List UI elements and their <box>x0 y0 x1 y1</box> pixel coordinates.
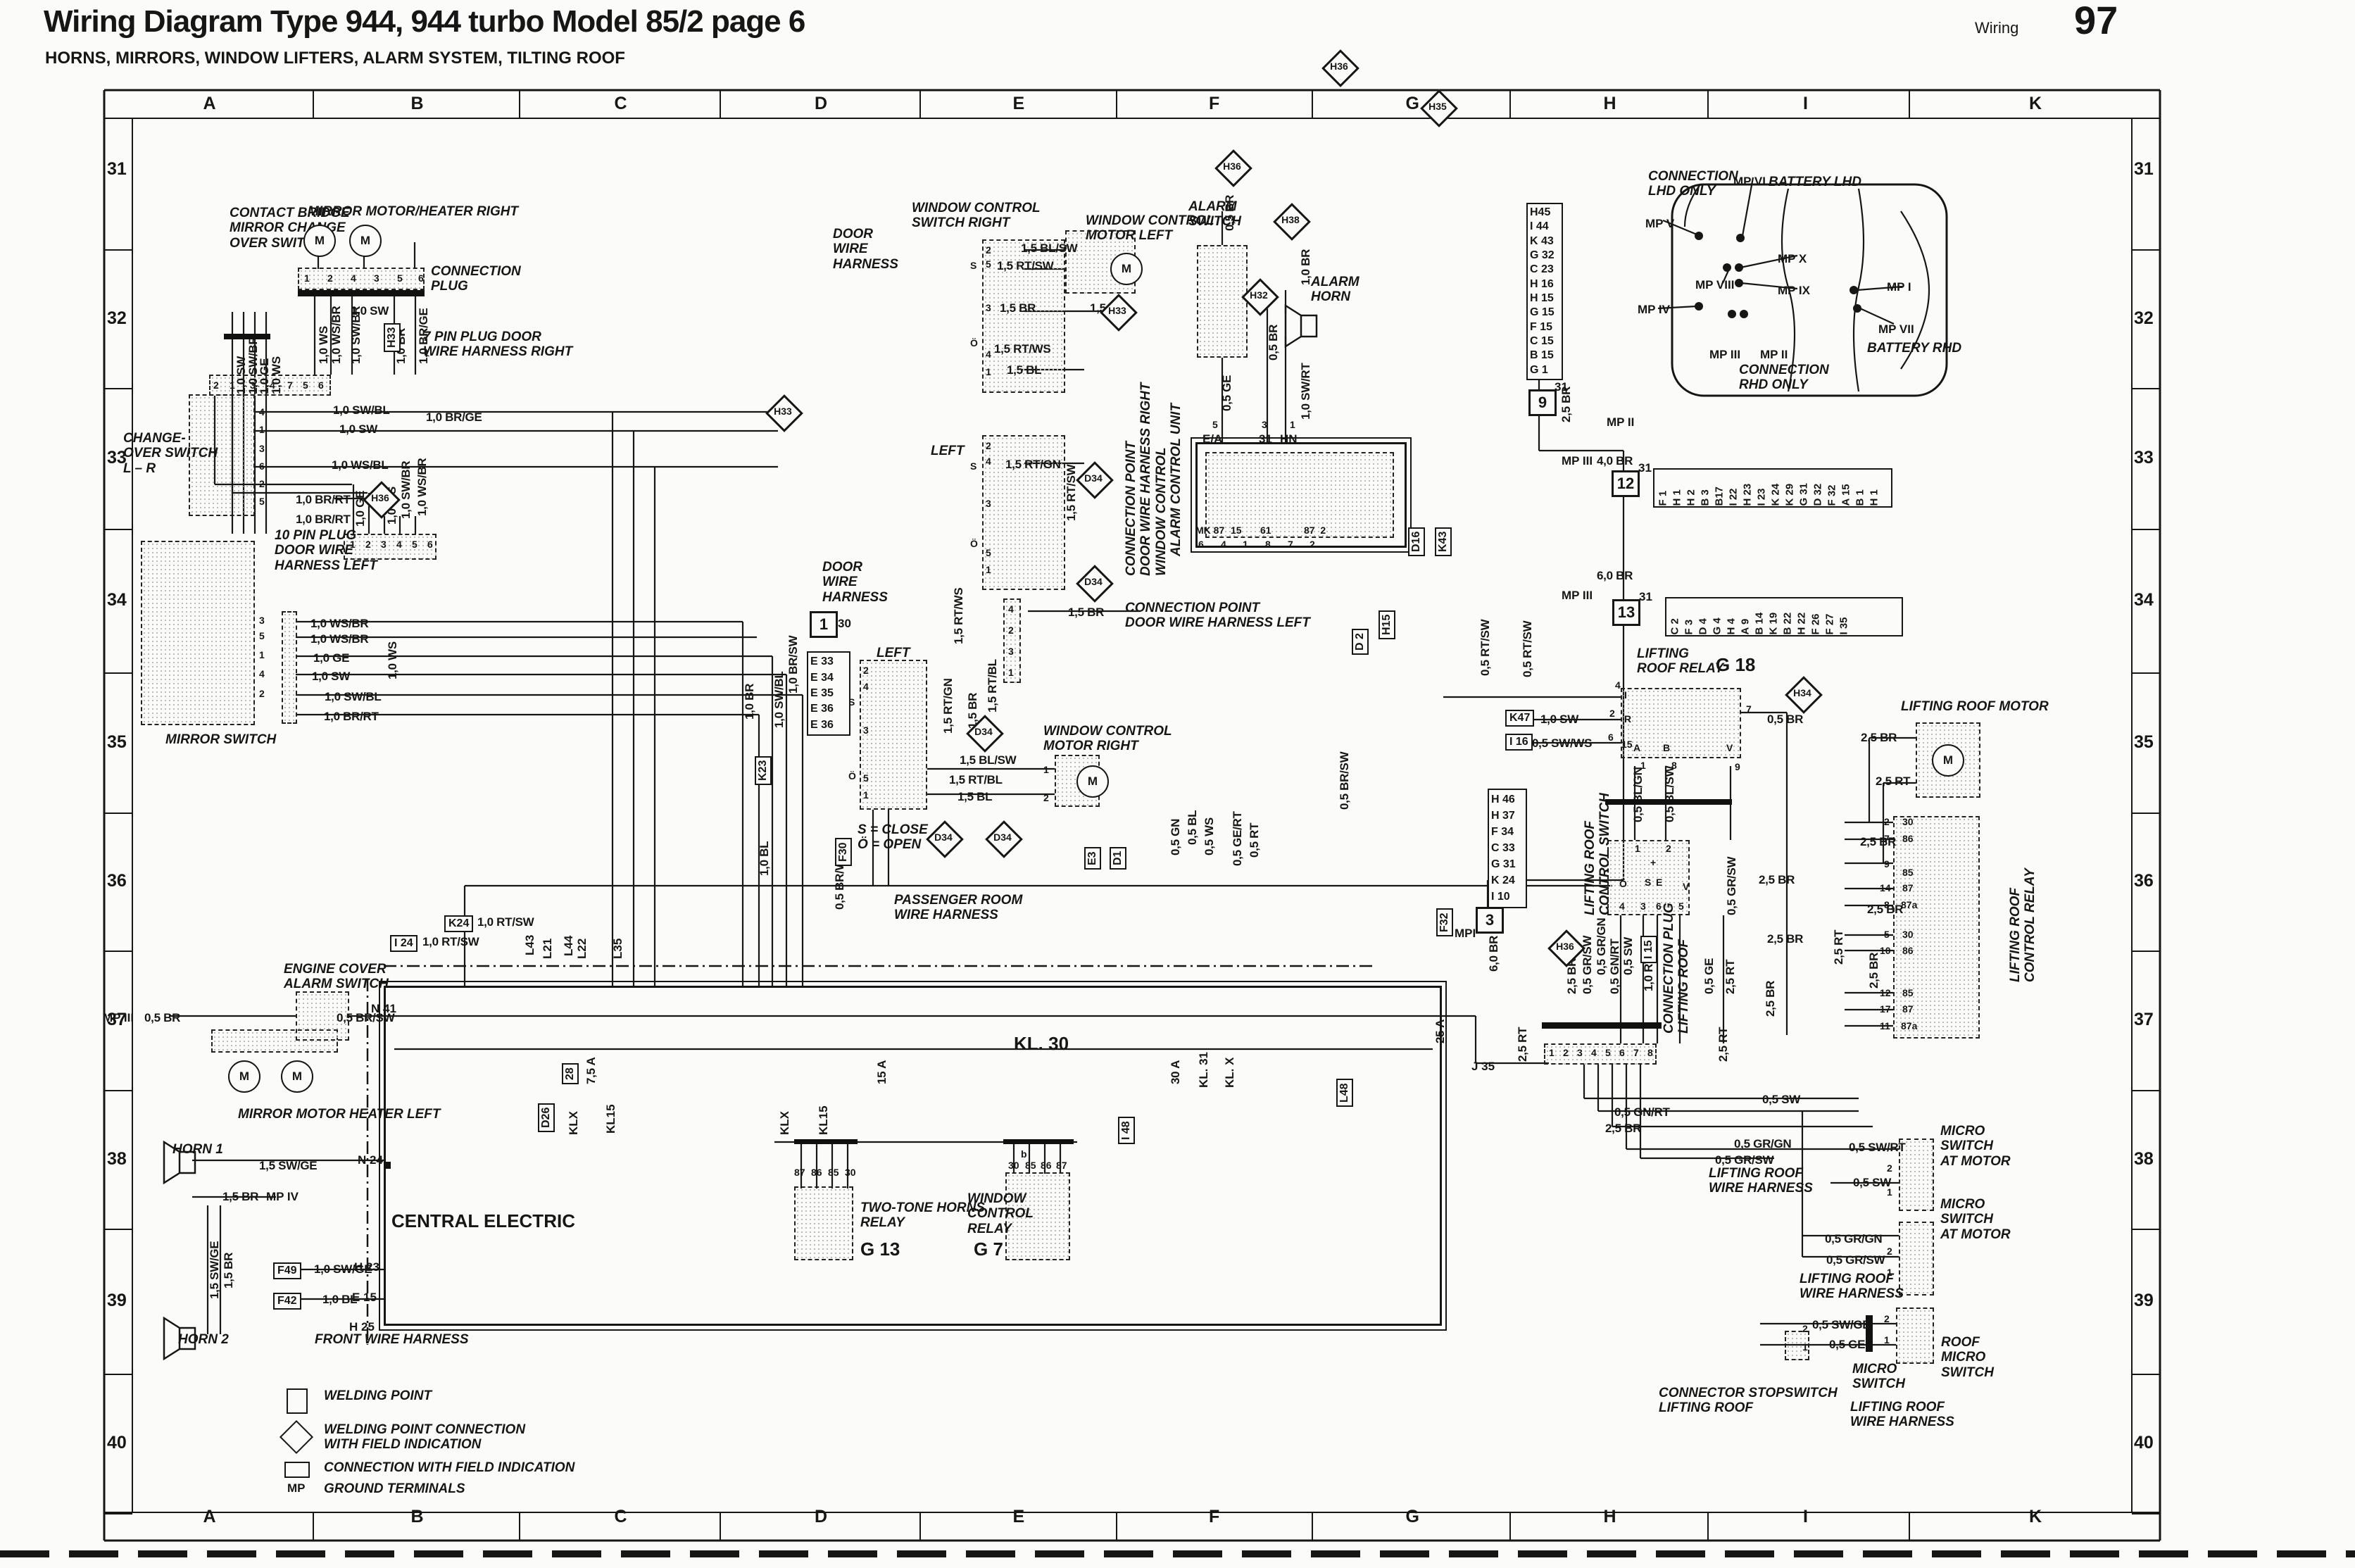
terminal-ref: H 25 <box>349 1320 375 1334</box>
pin-number: 61 <box>1260 525 1271 537</box>
pin-number: 6 <box>259 461 265 472</box>
component-box <box>384 986 1442 1326</box>
welding-point-diamond: H36 <box>1216 151 1248 183</box>
connector-list-item: G 31 <box>1491 858 1524 871</box>
pin-number: 6 <box>1198 539 1204 551</box>
pin-number: R <box>1624 714 1631 725</box>
terminal-ref: MP III <box>103 1011 134 1024</box>
pin-number: 87a <box>1901 1021 1917 1032</box>
pin-number: 6 <box>1656 901 1662 912</box>
pin-number: 3 <box>863 725 869 736</box>
connector-list-item: H 37 <box>1491 810 1524 822</box>
pin-number: 15 <box>1231 525 1242 537</box>
connector-list-item: H 22 <box>1796 621 1808 635</box>
connector-id-box: 28 <box>562 1063 579 1084</box>
pin-number: 11 <box>1880 1021 1890 1032</box>
pin-number: 30 <box>845 1167 856 1179</box>
connector-id-box: F32 <box>1436 908 1453 936</box>
wire-label: 1,0 SW/BL <box>333 403 389 417</box>
terminal-ref: KL. 31 <box>1197 1052 1210 1088</box>
grid-row-number: 39 <box>2134 1291 2154 1310</box>
pin-number: 3 <box>986 303 991 314</box>
pin-number: 30 <box>1902 817 1914 828</box>
wire-label: 1,5 RT/SW <box>1065 465 1078 521</box>
wire-label: 1,0 SW/RT <box>1299 363 1312 420</box>
connector-list-item: I 22 <box>1728 492 1740 506</box>
grid-letter: C <box>615 1507 627 1526</box>
grid-row-number: 32 <box>2134 308 2154 328</box>
component-label: LIFTING ROOF CONTROL SWITCH <box>1583 793 1613 915</box>
pin-number: 2 <box>1884 817 1890 828</box>
component-label: LIFTING ROOF MOTOR <box>1901 699 2049 714</box>
diamond-label: H33 <box>1101 305 1133 316</box>
welding-point-diamond: H33 <box>1101 295 1133 327</box>
connector-list-item: A 9 <box>1740 621 1752 635</box>
pin-number: 14 <box>1880 883 1891 894</box>
pin-number: 1 <box>1887 1187 1892 1198</box>
grid-letter: C <box>615 94 627 113</box>
component-label: FRONT WIRE HARNESS <box>315 1332 469 1347</box>
terminal-ref: MP IX <box>1778 284 1810 297</box>
pin-number: 3 <box>1008 646 1014 658</box>
motor-icon: M <box>228 1060 260 1093</box>
pin-number: 87 2 <box>1304 525 1326 537</box>
terminal-ref: KL. X <box>1223 1058 1236 1088</box>
connector-list-item: H 15 <box>1530 292 1559 305</box>
pin-number: 86 <box>1902 946 1914 957</box>
component-label: S = CLOSE Ö = OPEN <box>858 822 928 853</box>
wire-label: 1,0 BR/RT <box>296 513 351 526</box>
grid-letter: A <box>203 1507 216 1526</box>
wire-label: 0,5 GR/SW <box>1725 857 1738 915</box>
connector-list-item: E 36 <box>810 719 847 732</box>
wire-label: 0,5 WS <box>1202 817 1216 855</box>
pin-number: 2 <box>1310 539 1315 551</box>
component-label: BATTERY RHD <box>1867 341 1961 356</box>
wire-label: 0,5 BR/SW <box>1338 752 1351 810</box>
connector-id-box: L48 <box>1336 1079 1353 1107</box>
connection-number-box: 9 <box>1528 389 1557 416</box>
terminal-ref: HN <box>1280 432 1298 446</box>
component-label: CONNECTION LHD ONLY <box>1648 169 1738 199</box>
connector-id-box: D16 <box>1408 527 1425 556</box>
grid-letter: H <box>1604 94 1616 113</box>
connector-id-box: K23 <box>755 756 772 785</box>
pin-number: 8 <box>1647 1048 1653 1059</box>
pin-number: 2 <box>863 665 869 677</box>
wire-label: 0,5 GR/GN <box>1734 1137 1791 1150</box>
motor-icon: M <box>303 225 336 257</box>
grid-row-number: 40 <box>2134 1433 2154 1453</box>
pin-number: 4 <box>986 349 991 360</box>
pin-number: 7 <box>1288 539 1293 551</box>
diamond-label: D34 <box>927 832 960 843</box>
connector-list-item: H 16 <box>1530 278 1559 291</box>
pin-number: 2 <box>365 539 371 551</box>
connector-id-box: K24 <box>444 915 473 932</box>
terminal-ref: L22 <box>575 939 589 959</box>
wire-label: 0,5 GE/RT <box>1231 811 1244 866</box>
bus-bar <box>794 1139 858 1144</box>
wire-label: 1,0 BR <box>1299 249 1312 285</box>
component-label: WINDOW CONTROL SWITCH RIGHT <box>912 201 1041 231</box>
diamond-label: D34 <box>967 726 1000 737</box>
component-label: LEFT <box>877 646 910 660</box>
connector-list-item: I 10 <box>1491 891 1524 903</box>
component-label: LIFTING ROOF CONTROL RELAY <box>2008 868 2038 982</box>
connection-number-box: 1 <box>810 611 838 638</box>
wire-label: 2,5 RT <box>1832 930 1845 965</box>
terminal-ref: MP III <box>1562 454 1593 468</box>
connector-id-box: D 2 <box>1352 629 1369 655</box>
motor-icon: M <box>281 1060 313 1093</box>
grid-row-number: 36 <box>2134 871 2154 891</box>
connector-list-item: D 32 <box>1812 492 1824 506</box>
pin-number: 1 <box>259 650 265 661</box>
component-box <box>860 660 927 810</box>
diamond-label: H32 <box>1243 289 1275 301</box>
component-label: WINDOW CONTROL RELAY <box>967 1191 1034 1236</box>
connection-number-ref: 31 <box>1639 590 1652 603</box>
wire-label: 0,5 SW/RT <box>1849 1141 1905 1154</box>
diamond-label: H36 <box>1216 161 1248 172</box>
pin-number: 1 <box>1549 1048 1555 1059</box>
bus-bar <box>1003 1139 1074 1144</box>
diamond-label: H36 <box>1323 61 1355 72</box>
connector-list-item: B 15 <box>1530 349 1559 362</box>
grid-letter: H <box>1604 1507 1616 1526</box>
terminal-ref: MP VIII <box>1695 278 1734 291</box>
pin-number: 8 <box>1265 539 1271 551</box>
pin-number: 5 <box>259 631 265 642</box>
pin-number: 2 <box>213 380 219 391</box>
pin-number: 7 <box>1884 834 1890 845</box>
component-label: DOOR WIRE HARNESS <box>833 227 898 272</box>
terminal-ref: MP IV <box>266 1190 299 1203</box>
wire-label: 1,5 RT/GN <box>941 678 955 734</box>
pin-number: 15 <box>1621 739 1633 751</box>
legend-label: WELDING POINT CONNECTION WITH FIELD INDI… <box>324 1422 525 1453</box>
connector-list-item: H 2 <box>1685 492 1697 506</box>
wire-label: 0,5 GN/RT <box>1614 1105 1670 1119</box>
connector-list-item: G 4 <box>1712 621 1723 635</box>
terminal-ref: L43 <box>523 935 536 955</box>
connector-list-item: C 2 <box>1669 621 1681 635</box>
wire-label: 0,5 GR/GN <box>1825 1232 1882 1246</box>
wire-label: 0,5 BL/SW <box>1663 766 1676 822</box>
wire-label: 1,0 SW <box>1540 713 1578 726</box>
component-box <box>298 268 425 290</box>
terminal-ref: MP III <box>1709 348 1740 361</box>
component-label: MIRROR SWITCH <box>165 732 276 747</box>
wire-label: 1,0 BR/GE <box>417 308 430 365</box>
pin-number: 1 <box>1043 765 1049 776</box>
pin-number: 1 <box>1290 420 1295 431</box>
grid-row-number: 31 <box>2134 159 2154 179</box>
connector-id-box: H33 <box>384 323 401 352</box>
pin-number: 5 <box>986 548 991 559</box>
terminal-ref: KLX <box>778 1111 791 1135</box>
wire-label: 1,0 SW/BL <box>772 672 786 728</box>
component-label: ALARM CONTROL UNIT <box>1169 403 1183 556</box>
motor-icon: M <box>1076 765 1109 798</box>
diamond-label: H36 <box>364 492 396 503</box>
pin-number: 4 <box>351 273 356 284</box>
welding-point-diamond: D34 <box>927 822 960 854</box>
wire-label: 1,0 BR <box>743 684 756 720</box>
terminal-ref: MP I <box>1887 280 1911 294</box>
pin-number: 6 <box>1608 732 1614 744</box>
connector-id-box: I 24 <box>390 935 417 952</box>
pin-number: 2 <box>259 689 265 700</box>
terminal-ref: L35 <box>611 939 624 959</box>
wire-label: 0,5 BL <box>1186 810 1199 845</box>
pin-number: 12 <box>1880 988 1891 999</box>
pin-number: 4 <box>986 456 991 468</box>
welding-point-diamond: H33 <box>767 396 799 428</box>
wire-label: 0,5 BR <box>1767 713 1803 726</box>
connector-id-box: D1 <box>1110 847 1126 870</box>
diamond-label: D34 <box>1077 576 1110 587</box>
section-label: G 7 <box>974 1239 1003 1260</box>
pin-number: Ö <box>970 338 978 349</box>
pin-number: 1 <box>863 790 869 801</box>
pin-number: Ö <box>1619 879 1627 890</box>
pin-number: 4 <box>863 682 869 693</box>
pin-number: 4 <box>1619 901 1625 912</box>
pin-number: 5 <box>259 496 265 508</box>
pin-number: 2 <box>1008 625 1014 636</box>
wire-label: 2,5 RT <box>1876 774 1910 788</box>
connector-list-item: I 23 <box>1756 492 1768 506</box>
grid-row-number: 34 <box>107 590 127 610</box>
pin-number: 5 <box>1605 1048 1611 1059</box>
legend-connection-symbol <box>284 1462 310 1478</box>
wire-label: 0,5 GR/SW <box>1715 1153 1773 1167</box>
component-box <box>282 611 297 724</box>
diamond-label: H36 <box>1549 941 1581 952</box>
section-label: G 13 <box>860 1239 900 1260</box>
grid-letter: F <box>1209 94 1219 113</box>
pin-number: 4 <box>270 380 275 391</box>
wire-label: 1,0 WS <box>386 641 399 679</box>
bus-bar <box>298 290 425 296</box>
component-label: LEFT <box>931 444 965 458</box>
component-label: CONNECTOR STOPSWITCH LIFTING ROOF <box>1659 1386 1838 1416</box>
wire-label: 1,0 BR/RT <box>324 710 379 723</box>
pin-number: 1 <box>230 380 235 391</box>
pin-number: 4 <box>1591 1048 1597 1059</box>
connector-id-box: F30 <box>835 838 852 866</box>
grid-row-number: 39 <box>107 1291 127 1310</box>
wire-label: 0,5 BR/SW <box>337 1011 394 1024</box>
bus-bar <box>1605 799 1732 805</box>
connector-list-item: H45 <box>1530 206 1559 219</box>
connector-list-item: F 15 <box>1530 321 1559 334</box>
terminal-ref: J 35 <box>1471 1060 1495 1073</box>
connection-number-ref: 31 <box>1638 461 1652 475</box>
connector-list-item: F 27 <box>1824 621 1836 635</box>
pin-number: 4 <box>1221 539 1226 551</box>
grid-letter: F <box>1209 1507 1219 1526</box>
legend-label: WELDING POINT <box>324 1388 432 1403</box>
pin-number: 87 <box>794 1167 805 1179</box>
pin-number: 86 <box>1902 834 1914 845</box>
pin-number: 5 <box>1678 901 1684 912</box>
grid-letter: I <box>1803 1507 1808 1526</box>
pin-number: 86 <box>811 1167 822 1179</box>
wire-label: 1,0 SW/BR <box>399 461 413 519</box>
pin-number: 4 <box>1008 604 1014 615</box>
component-box <box>1544 1043 1657 1065</box>
connection-number-box: 13 <box>1612 599 1640 626</box>
pin-number: 3 <box>259 615 265 627</box>
bus-bar <box>224 334 270 339</box>
pin-number: I <box>1624 690 1627 701</box>
connection-number-ref: 31 <box>1555 380 1568 394</box>
pin-number: 17 <box>1880 1004 1891 1015</box>
component-label: CONNECTION PLUG <box>431 264 521 294</box>
pin-number: 30 <box>1902 929 1914 941</box>
motor-icon: M <box>1932 744 1964 777</box>
wire-label: 30 A <box>1169 1060 1182 1084</box>
pin-number: 6 <box>318 380 324 391</box>
pin-number: 3 <box>986 498 991 510</box>
grid-letter: K <box>2029 1507 2042 1526</box>
diamond-label: D34 <box>1077 472 1110 484</box>
terminal-ref: MP II <box>1760 348 1788 361</box>
connector-list-item: F 26 <box>1810 621 1822 635</box>
wire-label: 1,5 BL/SW <box>960 753 1016 767</box>
wire-label: 2,5 RT <box>1723 960 1737 994</box>
connector-id-box: I 15 <box>1640 936 1657 963</box>
wire-label: 1,5 RT/BL <box>986 659 999 713</box>
terminal-ref: MP VII <box>1878 322 1914 336</box>
pin-number: 5 <box>303 380 308 391</box>
connector-id-box: F42 <box>273 1293 301 1310</box>
pin-number: 8 <box>1884 900 1890 911</box>
grid-letter: D <box>815 94 827 113</box>
terminal-ref: 31 <box>1259 432 1272 446</box>
terminal-ref: MPI <box>1455 927 1476 940</box>
pin-number: 1 <box>1802 1342 1808 1353</box>
wire-label: 0,5 BR <box>1267 325 1280 360</box>
pin-number: 2 <box>1043 793 1049 804</box>
wire-label: 0,5 SW <box>1621 937 1635 975</box>
pin-number: 87a <box>1901 900 1917 911</box>
wire-label: 6,0 BR <box>1487 936 1500 972</box>
section-label: G 18 <box>1716 655 1755 675</box>
wire-label: 1,0 BL <box>322 1293 357 1306</box>
component-label: HORN 1 <box>172 1142 223 1157</box>
wire-label: 1,5 RT/BL <box>949 773 1003 786</box>
pin-number: 5 <box>986 259 991 270</box>
pin-number: V <box>1726 743 1733 754</box>
connector-list-item: H 1 <box>1671 492 1683 506</box>
pin-number: 2 <box>327 273 333 284</box>
connector-list-item: K 24 <box>1491 874 1524 887</box>
pin-number: 86 <box>1041 1160 1052 1172</box>
component-label: HORN 2 <box>178 1332 229 1347</box>
connector-list-item: G 1 <box>1530 364 1559 377</box>
connector-id-box: K43 <box>1435 527 1452 556</box>
pin-number: 5 <box>1884 929 1890 941</box>
connector-list-item: C 33 <box>1491 842 1524 855</box>
component-label: MICRO SWITCH AT MOTOR <box>1940 1124 2011 1169</box>
pin-number: 85 <box>1902 988 1914 999</box>
wire-label: 1,0 WS <box>317 326 330 364</box>
connector-list: E 33E 34E 35E 36E 36 <box>807 651 850 736</box>
pin-number: 9 <box>1884 859 1890 870</box>
wire-label: 0,5 RT/SW <box>1478 620 1492 676</box>
wire-label: 2,5 BR <box>1605 1122 1641 1135</box>
grid-letter: E <box>1013 94 1025 113</box>
pin-number: 1 <box>986 367 991 378</box>
welding-point-diamond: D34 <box>1077 463 1110 495</box>
pin-number: 9 <box>1735 762 1740 773</box>
pin-number: 4 <box>259 407 265 418</box>
connector-list-item: K 43 <box>1530 235 1559 248</box>
component-label: MIRROR MOTOR HEATER LEFT <box>238 1107 440 1122</box>
wire-label: 1,5 SW/GE <box>259 1159 317 1172</box>
wire-label: 1,0 SW <box>312 670 350 683</box>
component-label: CONNECTION POINT DOOR WIRE HARNESS RIGHT… <box>1124 383 1169 576</box>
component-label: MIRROR MOTOR/HEATER RIGHT <box>308 204 518 219</box>
pin-number: 2 <box>1887 1246 1892 1257</box>
component-label: MICRO SWITCH AT MOTOR <box>1940 1197 2011 1242</box>
pin-number: 1 <box>350 539 356 551</box>
connector-list-item: I 35 <box>1838 621 1850 635</box>
pin-number: 6 <box>1619 1048 1625 1059</box>
welding-point-diamond: H36 <box>364 482 396 515</box>
component-label: DOOR WIRE HARNESS <box>822 560 888 605</box>
terminal-ref: MP V <box>1645 217 1674 230</box>
connector-id-box: H15 <box>1379 610 1395 639</box>
wire-label: 1,5 RT/WS <box>994 342 1050 356</box>
pin-number: 2 <box>1666 843 1671 855</box>
pin-number: 3 <box>1640 901 1646 912</box>
grid-letter: E <box>1013 1507 1025 1526</box>
pin-number: 4 <box>1615 680 1621 691</box>
welding-point-diamond: H35 <box>1421 91 1454 123</box>
grid-row-number: 37 <box>2134 1010 2154 1029</box>
pin-number: 85 <box>1025 1160 1036 1172</box>
pin-number: 1 <box>304 273 310 284</box>
connector-list-item: G 15 <box>1530 306 1559 319</box>
connector-id-box: D26 <box>538 1103 555 1132</box>
wire-label: 0,5 GE <box>1220 375 1233 411</box>
wire-label: 7,5 A <box>584 1057 598 1084</box>
pin-number: 85 <box>828 1167 839 1179</box>
pin-number: 2 <box>986 245 991 256</box>
pin-number: b <box>1021 1149 1027 1160</box>
connector-list-item: G 32 <box>1530 249 1559 262</box>
wire-label: 1,5 BR <box>222 1253 235 1288</box>
component-box <box>1896 1307 1934 1364</box>
wire-label: 2,5 BR <box>1867 953 1880 989</box>
pin-number: Ö <box>970 539 978 550</box>
wire-label: 1,0 WS/BR <box>415 458 429 516</box>
wire-label: 1,0 SW/BL <box>325 690 381 703</box>
component-label: CONNECTION POINT DOOR WIRE HARNESS LEFT <box>1125 601 1310 631</box>
wire-label: 1,5 BR <box>222 1190 258 1203</box>
diamond-label: H33 <box>767 406 799 417</box>
wire-label: 1,5 BL/SW <box>1021 242 1077 255</box>
wire-label: 0,5 GN <box>1169 819 1182 855</box>
connector-list-item: K 29 <box>1784 492 1796 506</box>
wire-label: 0,5 GN/RT <box>1608 939 1621 994</box>
connection-number-ref: 30 <box>838 617 851 630</box>
